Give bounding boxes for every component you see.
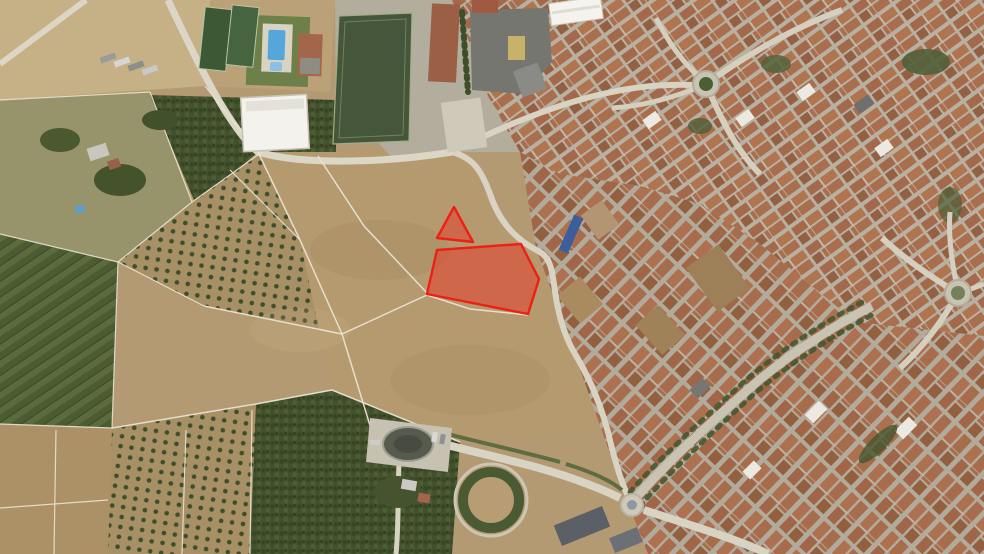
roundabout-south-center — [627, 500, 637, 510]
roundabout-east-center — [951, 286, 965, 300]
map-canvas[interactable] — [0, 0, 984, 554]
house-by-pool-annex — [300, 58, 321, 75]
tennis-court-2 — [226, 5, 259, 67]
field-smudge-3 — [250, 308, 350, 352]
roundabout-northeast-center — [699, 77, 713, 91]
orchard-dots-bottom — [108, 404, 256, 554]
oval-building-core — [394, 435, 422, 453]
school-courtyard — [441, 97, 488, 152]
trees-cluster-houses — [374, 476, 422, 508]
circular-park-trees — [463, 472, 519, 528]
satellite-map[interactable] — [0, 0, 984, 554]
trees-left-3 — [142, 110, 178, 130]
urban-trees-1 — [902, 49, 950, 75]
trees-left-1 — [94, 164, 146, 196]
red-roof-top — [472, 0, 498, 13]
orchard-rows-left — [0, 234, 118, 428]
school-yellow-block — [508, 36, 525, 60]
urban-trees-3 — [688, 118, 712, 134]
school-long-red-roof — [428, 3, 460, 82]
field-smudge-2 — [390, 345, 550, 415]
parked-car-3 — [370, 440, 380, 445]
swimming-pool-small — [270, 62, 282, 71]
field-smudge-1 — [310, 220, 450, 280]
swimming-pool — [267, 30, 285, 61]
urban-trees-2 — [761, 55, 791, 73]
trees-left-2 — [40, 128, 80, 152]
